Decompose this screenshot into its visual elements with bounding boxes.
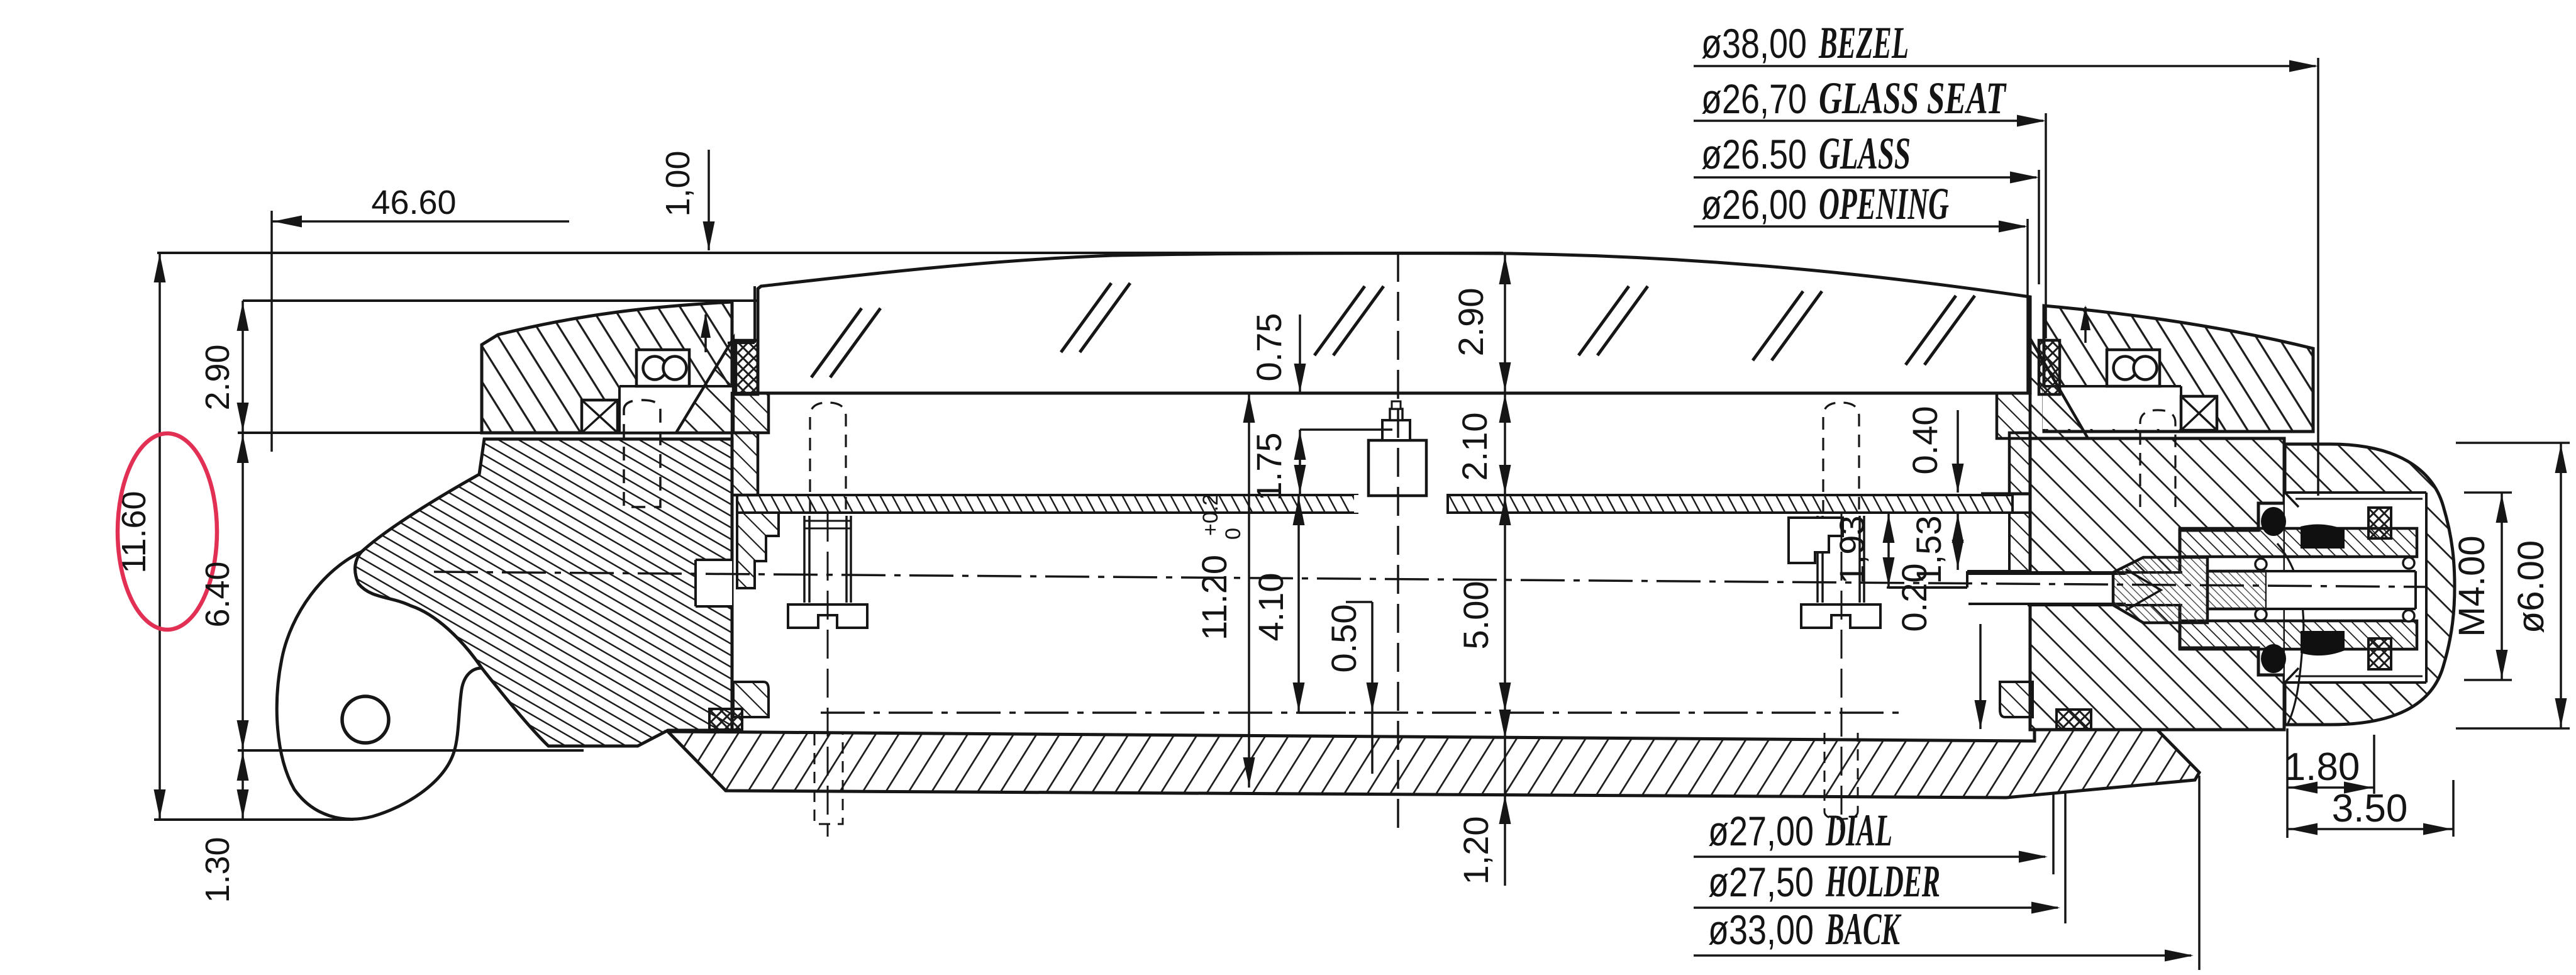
svg-text:3.50: 3.50 <box>2332 787 2408 830</box>
svg-text:2.90: 2.90 <box>1451 288 1491 357</box>
svg-text:BACK: BACK <box>1825 904 1902 954</box>
svg-text:GLASS: GLASS <box>1819 128 1911 179</box>
svg-text:4.10: 4.10 <box>1251 573 1291 642</box>
svg-text:0.20: 0.20 <box>1894 564 1934 632</box>
svg-text:0.50: 0.50 <box>1324 604 1363 673</box>
svg-text:M4.00: M4.00 <box>2451 535 2492 637</box>
svg-text:1.80: 1.80 <box>2284 745 2360 789</box>
svg-text:ø27,00: ø27,00 <box>1708 808 1814 854</box>
svg-text:ø6.00: ø6.00 <box>2511 540 2551 633</box>
svg-text:+0.2: +0.2 <box>1199 494 1223 536</box>
svg-text:HOLDER: HOLDER <box>1825 856 1940 906</box>
svg-text:ø26,70: ø26,70 <box>1701 75 1807 122</box>
svg-text:BEZEL: BEZEL <box>1818 18 1909 68</box>
svg-text:2.90: 2.90 <box>199 344 236 410</box>
svg-text:1.75: 1.75 <box>1249 433 1289 501</box>
svg-text:2.10: 2.10 <box>1455 413 1494 481</box>
svg-text:ø26.50: ø26.50 <box>1701 131 1807 177</box>
svg-text:0: 0 <box>1221 528 1245 540</box>
svg-text:0.75: 0.75 <box>1249 313 1289 382</box>
svg-text:11.20: 11.20 <box>1194 555 1234 640</box>
svg-text:1.30: 1.30 <box>199 837 236 903</box>
svg-text:DIAL: DIAL <box>1825 805 1892 855</box>
svg-text:ø33,00: ø33,00 <box>1708 906 1814 953</box>
svg-text:ø26,00: ø26,00 <box>1701 181 1807 228</box>
svg-text:ø38,00: ø38,00 <box>1701 20 1807 67</box>
svg-text:0.40: 0.40 <box>1905 406 1945 475</box>
svg-text:1,00: 1,00 <box>659 150 697 216</box>
svg-text:ø27,50: ø27,50 <box>1708 859 1814 905</box>
svg-text:46.60: 46.60 <box>371 184 456 221</box>
svg-text:1,20: 1,20 <box>1456 816 1496 885</box>
svg-text:6.40: 6.40 <box>199 561 236 627</box>
svg-text:5.00: 5.00 <box>1456 581 1496 650</box>
svg-text:GLASS SEAT: GLASS SEAT <box>1819 73 2007 123</box>
svg-text:OPENING: OPENING <box>1819 179 1949 229</box>
svg-text:1,93: 1,93 <box>1832 516 1872 584</box>
